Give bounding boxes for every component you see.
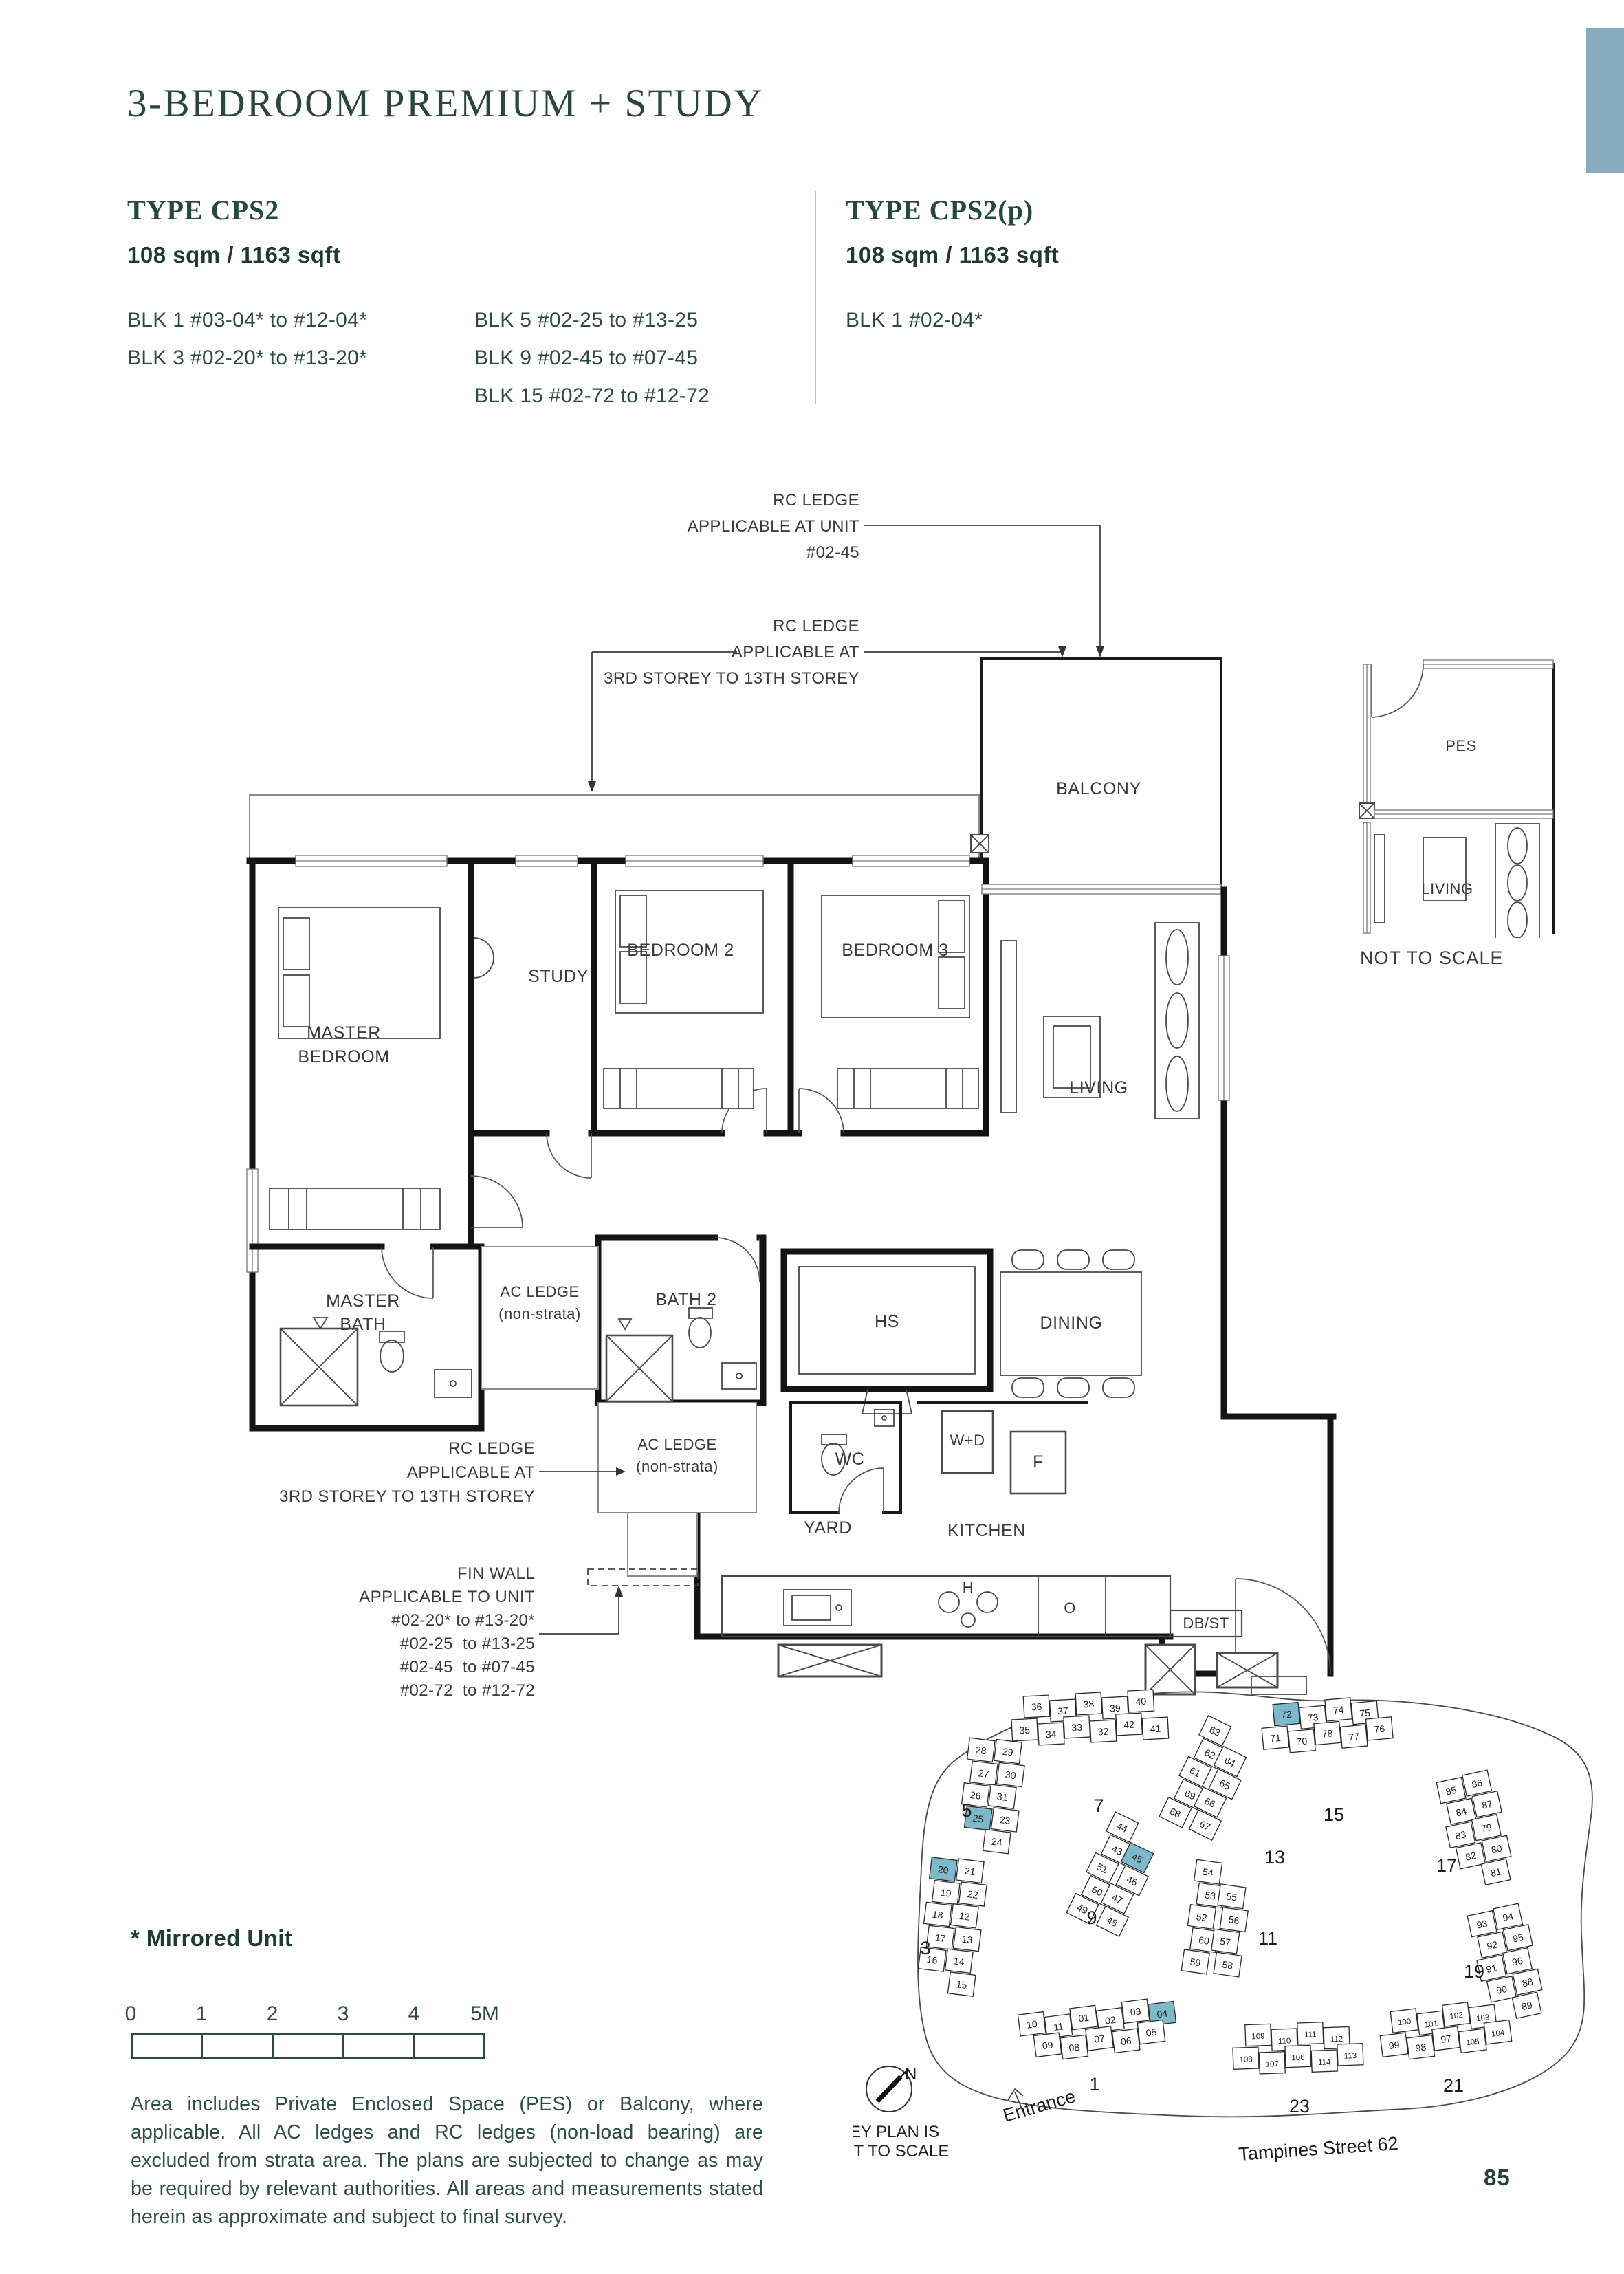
- svg-text:09: 09: [1042, 2039, 1054, 2051]
- keyplan-block-label: 17: [1436, 1855, 1457, 1876]
- annotation-rc-ledge-storey-left: RC LEDGE APPLICABLE AT 3RD STOREY TO 13T…: [279, 1439, 626, 1506]
- keyplan-cluster-block-15: 727374757170787776: [1260, 1694, 1394, 1755]
- svg-text:102: 102: [1449, 2011, 1464, 2021]
- blk-list-line: BLK 5 #02-25 to #13-25: [474, 301, 698, 339]
- svg-text:BATH: BATH: [340, 1315, 386, 1334]
- pes-inset: PES LIVING: [1358, 655, 1564, 938]
- label-yard: YARD: [804, 1518, 852, 1538]
- label-oven: O: [1064, 1599, 1076, 1617]
- svg-text:23: 23: [999, 1814, 1011, 1826]
- svg-text:78: 78: [1321, 1727, 1333, 1739]
- page-title: 3-BEDROOM PREMIUM + STUDY: [127, 81, 764, 126]
- keyplan-block-label: 21: [1443, 2075, 1464, 2096]
- label-master-bath: MASTER: [326, 1291, 400, 1311]
- svg-text:114: 114: [1318, 2058, 1331, 2067]
- svg-text:17: 17: [934, 1932, 947, 1944]
- svg-text:76: 76: [1374, 1723, 1385, 1735]
- svg-text:RC LEDGE: RC LEDGE: [773, 491, 859, 510]
- entrance-marker: Entrance: [1000, 2086, 1077, 2126]
- svg-text:53: 53: [1204, 1890, 1216, 1902]
- scale-label: 3: [338, 2002, 349, 2026]
- keyplan-cluster-block-5: 282726252930312324: [956, 1736, 1027, 1855]
- svg-text:103: 103: [1476, 2013, 1491, 2023]
- svg-text:72: 72: [1281, 1708, 1293, 1720]
- svg-text:3RD STOREY TO 13TH STOREY: 3RD STOREY TO 13TH STOREY: [279, 1487, 535, 1506]
- keyplan-cluster-block-9: 444351504945464748: [1066, 1812, 1167, 1938]
- svg-text:APPLICABLE AT: APPLICABLE AT: [407, 1463, 535, 1482]
- keyplan-block-label: 13: [1264, 1847, 1285, 1868]
- keyplan-cluster-block-21: 100101102103999897105104: [1377, 1998, 1512, 2062]
- label-bedroom2: BEDROOM 2: [627, 941, 734, 960]
- svg-text:22: 22: [967, 1888, 979, 1901]
- svg-text:38: 38: [1083, 1698, 1095, 1710]
- svg-text:#02-45 to #07-45: #02-45 to #07-45: [400, 1658, 535, 1676]
- svg-text:37: 37: [1057, 1705, 1069, 1717]
- keyplan-cluster-block-3: 2019181716212212131415: [916, 1855, 989, 1996]
- scale-bar: 012345M: [131, 2002, 485, 2059]
- label-pes: PES: [1445, 737, 1477, 754]
- svg-text:54: 54: [1202, 1866, 1214, 1879]
- svg-text:110: 110: [1278, 2037, 1291, 2046]
- svg-text:77: 77: [1348, 1731, 1360, 1742]
- floor-plan: RC LEDGE APPLICABLE AT UNIT #02-45 RC LE…: [241, 474, 1348, 1760]
- svg-text:#02-72 to #12-72: #02-72 to #12-72: [400, 1681, 535, 1700]
- annotation-fin-wall: FIN WALL APPLICABLE TO UNIT #02-20* to #…: [359, 1564, 623, 1700]
- svg-text:99: 99: [1388, 2039, 1401, 2051]
- svg-text:71: 71: [1269, 1732, 1281, 1744]
- svg-text:APPLICABLE AT UNIT: APPLICABLE AT UNIT: [688, 517, 859, 536]
- keyplan-block-label: 1: [1089, 2074, 1099, 2095]
- svg-text:27: 27: [978, 1767, 990, 1780]
- svg-text:NOT TO SCALE: NOT TO SCALE: [853, 2142, 949, 2161]
- blk-list-line: BLK 9 #02-45 to #07-45: [474, 339, 698, 377]
- scale-label: 5M: [470, 2002, 499, 2026]
- svg-text:39: 39: [1110, 1703, 1121, 1714]
- svg-text:34: 34: [1045, 1729, 1057, 1740]
- svg-text:N: N: [905, 2065, 917, 2084]
- svg-text:30: 30: [1005, 1769, 1017, 1781]
- svg-text:15: 15: [956, 1978, 968, 1991]
- svg-text:75: 75: [1359, 1707, 1371, 1718]
- svg-text:04: 04: [1156, 2008, 1169, 2020]
- label-wc: WC: [835, 1450, 865, 1469]
- label-fridge: F: [1033, 1452, 1044, 1472]
- svg-text:36: 36: [1031, 1701, 1042, 1713]
- svg-text:32: 32: [1097, 1726, 1109, 1738]
- svg-text:13: 13: [961, 1934, 974, 1946]
- scale-label: 0: [125, 2002, 137, 2026]
- key-plan: 3637383940353433324241772737475717078777…: [853, 1637, 1623, 2180]
- svg-text:24: 24: [991, 1836, 1003, 1848]
- svg-text:109: 109: [1251, 2033, 1265, 2042]
- label-wd: W+D: [950, 1432, 985, 1449]
- svg-text:52: 52: [1196, 1911, 1208, 1923]
- label-dining: DINING: [1040, 1313, 1102, 1333]
- svg-text:FIN WALL: FIN WALL: [457, 1564, 535, 1583]
- svg-text:108: 108: [1239, 2055, 1253, 2064]
- svg-text:19: 19: [940, 1887, 952, 1899]
- svg-text:21: 21: [964, 1865, 976, 1877]
- label-dbst: DB/ST: [1183, 1615, 1229, 1632]
- blk-list-line: BLK 3 #02-20* to #13-20*: [127, 339, 367, 377]
- label-study: STUDY: [528, 967, 589, 986]
- svg-text:06: 06: [1120, 2035, 1132, 2047]
- svg-text:07: 07: [1093, 2033, 1106, 2045]
- keyplan-block-label: 3: [920, 1938, 930, 1958]
- keyplan-block-label: 5: [961, 1800, 972, 1821]
- page-number: 85: [1484, 2165, 1511, 2191]
- svg-text:57: 57: [1219, 1936, 1231, 1948]
- label-hs: HS: [875, 1312, 899, 1331]
- svg-text:#02-20* to #13-20*: #02-20* to #13-20*: [391, 1611, 535, 1630]
- svg-text:RC LEDGE: RC LEDGE: [448, 1439, 535, 1458]
- svg-text:BEDROOM: BEDROOM: [298, 1047, 389, 1067]
- svg-text:112: 112: [1330, 2035, 1343, 2044]
- svg-text:106: 106: [1291, 2054, 1305, 2063]
- svg-text:55: 55: [1226, 1890, 1238, 1903]
- svg-text:70: 70: [1296, 1736, 1308, 1747]
- label-ac-ledge-2: AC LEDGE: [637, 1436, 716, 1453]
- svg-text:(non-strata): (non-strata): [498, 1305, 581, 1322]
- svg-text:56: 56: [1228, 1914, 1240, 1926]
- svg-text:100: 100: [1397, 2018, 1412, 2027]
- keyplan-block-label: 19: [1464, 1961, 1484, 1982]
- svg-text:98: 98: [1415, 2042, 1427, 2054]
- label-living: LIVING: [1069, 1078, 1128, 1097]
- keyplan-cluster-block-13: 636261696864656667: [1159, 1716, 1260, 1841]
- annotation-rc-ledge-unit: RC LEDGE APPLICABLE AT UNIT #02-45: [688, 491, 1104, 657]
- keyplan-block-label: 9: [1086, 1907, 1097, 1928]
- street-label: Tampines Street 62: [1238, 2133, 1398, 2165]
- label-ac-ledge-1: AC LEDGE: [500, 1283, 579, 1300]
- svg-text:20: 20: [937, 1863, 950, 1876]
- svg-text:12: 12: [958, 1910, 971, 1923]
- svg-text:60: 60: [1198, 1934, 1210, 1947]
- svg-text:97: 97: [1440, 2033, 1452, 2045]
- svg-text:RC LEDGE: RC LEDGE: [773, 617, 859, 635]
- svg-text:31: 31: [996, 1791, 1009, 1803]
- svg-text:111: 111: [1304, 2031, 1317, 2040]
- label-bedroom3: BEDROOM 3: [842, 941, 948, 960]
- keyplan-cluster-block-7: 3637383940353433324241: [1010, 1689, 1168, 1747]
- corner-tab: [1586, 28, 1624, 173]
- keyplan-cluster-block-1: 1011010203040908070605: [1018, 1996, 1178, 2064]
- label-bath2: BATH 2: [655, 1290, 716, 1309]
- rc-ledge-strip: [250, 795, 979, 861]
- scale-label: 1: [196, 2002, 208, 2026]
- svg-text:3RD STOREY TO 13TH STOREY: 3RD STOREY TO 13TH STOREY: [604, 669, 859, 688]
- svg-text:#02-25 to #13-25: #02-25 to #13-25: [400, 1635, 535, 1653]
- label-hob: H: [963, 1579, 974, 1596]
- annotation-rc-ledge-storey-top: RC LEDGE APPLICABLE AT 3RD STOREY TO 13T…: [588, 617, 1066, 792]
- svg-text:29: 29: [1002, 1746, 1014, 1758]
- keyplan-block-label: 15: [1324, 1804, 1344, 1825]
- keyplan-block-label: 11: [1258, 1928, 1277, 1949]
- svg-text:10: 10: [1026, 2018, 1038, 2031]
- compass-icon: N: [866, 2065, 917, 2112]
- svg-text:41: 41: [1150, 1723, 1161, 1735]
- svg-text:59: 59: [1189, 1956, 1202, 1968]
- keyplan-cluster-block-23: 109110111112108107106114113: [1232, 2021, 1363, 2075]
- keyplan-block-label: 23: [1289, 2096, 1310, 2117]
- type-cps2-area: 108 sqm / 1163 sqft: [127, 242, 340, 268]
- svg-text:02: 02: [1104, 2014, 1117, 2026]
- svg-text:08: 08: [1068, 2042, 1081, 2054]
- type-cps2p-area: 108 sqm / 1163 sqft: [846, 242, 1059, 268]
- svg-text:Entrance: Entrance: [1000, 2086, 1077, 2126]
- blk-list-line: BLK 1 #03-04* to #12-04*: [127, 301, 367, 339]
- svg-text:105: 105: [1466, 2037, 1480, 2047]
- rc-ledge-lower: [628, 1513, 697, 1576]
- svg-text:#02-45: #02-45: [806, 543, 859, 562]
- type-cps2p-heading: TYPE CPS2(p): [846, 194, 1033, 226]
- column-divider: [815, 191, 816, 404]
- type-cps2-heading: TYPE CPS2: [127, 194, 279, 226]
- svg-text:42: 42: [1123, 1719, 1135, 1731]
- svg-text:28: 28: [975, 1744, 987, 1756]
- svg-text:40: 40: [1135, 1696, 1147, 1707]
- scale-bar-graphic: [131, 2033, 485, 2059]
- svg-text:18: 18: [932, 1909, 944, 1921]
- mirrored-unit-note: * Mirrored Unit: [131, 1925, 292, 1952]
- svg-text:03: 03: [1130, 2005, 1142, 2018]
- label-balcony: BALCONY: [1056, 779, 1141, 798]
- brochure-page: 3-BEDROOM PREMIUM + STUDY TYPE CPS2 108 …: [0, 0, 1624, 2274]
- svg-text:58: 58: [1222, 1959, 1234, 1971]
- svg-text:01: 01: [1078, 2012, 1090, 2024]
- label-master-bedroom: MASTER: [307, 1023, 381, 1042]
- keyplan-cluster-block-11: 545352605955565758: [1181, 1859, 1254, 1978]
- svg-text:107: 107: [1266, 2060, 1280, 2069]
- svg-text:APPLICABLE AT: APPLICABLE AT: [732, 643, 859, 662]
- svg-text:25: 25: [972, 1813, 985, 1825]
- svg-text:74: 74: [1332, 1704, 1344, 1716]
- svg-text:101: 101: [1424, 2020, 1438, 2029]
- svg-text:11: 11: [1053, 2020, 1064, 2033]
- svg-text:113: 113: [1344, 2052, 1357, 2061]
- keyplan-note: KEY PLAN IS: [853, 2123, 939, 2141]
- svg-text:104: 104: [1491, 2029, 1506, 2038]
- blk-list-line: BLK 15 #02-72 to #12-72: [474, 377, 710, 415]
- blk-list-line: BLK 1 #02-04*: [846, 301, 983, 339]
- scale-label: 2: [267, 2002, 278, 2026]
- inset-not-to-scale: NOT TO SCALE: [1360, 948, 1504, 969]
- svg-text:73: 73: [1307, 1712, 1319, 1723]
- disclaimer-text: Area includes Private Enclosed Space (PE…: [131, 2090, 763, 2231]
- svg-text:33: 33: [1071, 1722, 1083, 1734]
- svg-text:14: 14: [953, 1955, 965, 1967]
- svg-text:APPLICABLE TO UNIT: APPLICABLE TO UNIT: [359, 1588, 535, 1606]
- label-kitchen: KITCHEN: [947, 1521, 1026, 1540]
- svg-text:35: 35: [1019, 1725, 1031, 1736]
- keyplan-block-label: 7: [1093, 1795, 1104, 1816]
- label-inset-living: LIVING: [1421, 880, 1473, 897]
- svg-text:(non-strata): (non-strata): [636, 1458, 718, 1475]
- scale-label: 4: [408, 2002, 420, 2026]
- svg-text:05: 05: [1145, 2026, 1158, 2039]
